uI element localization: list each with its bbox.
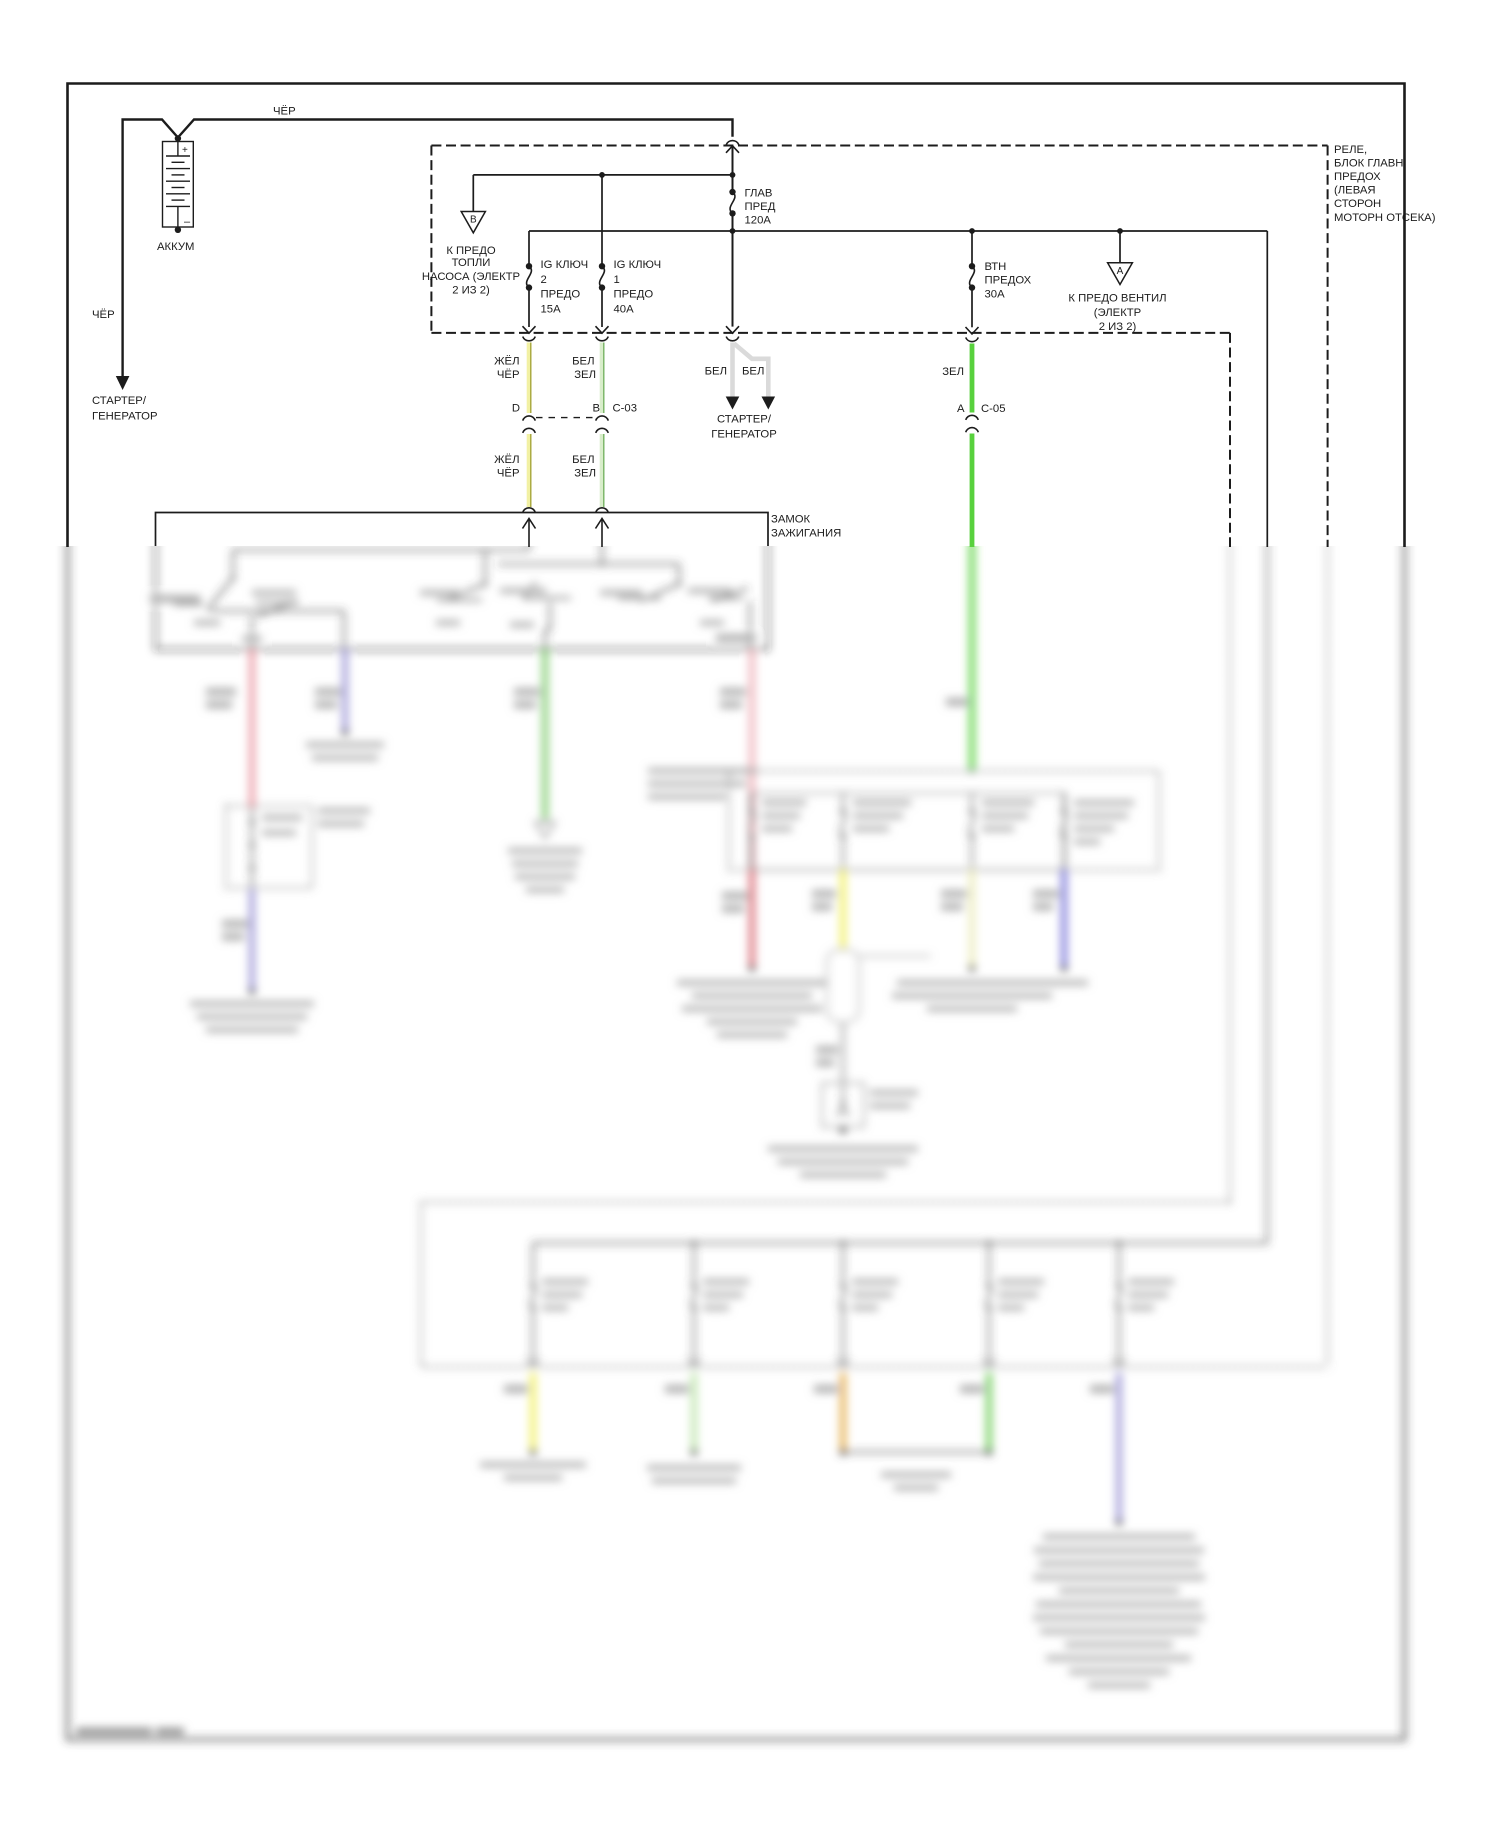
svg-text:B: B bbox=[470, 215, 477, 226]
svg-text:МОТОРН ОТСЕКА): МОТОРН ОТСЕКА) bbox=[1334, 212, 1436, 224]
svg-text:СТОРОН: СТОРОН bbox=[1334, 198, 1381, 210]
svg-text:C-03: C-03 bbox=[613, 403, 638, 415]
svg-text:ПРЕДО: ПРЕДО bbox=[541, 289, 581, 301]
svg-text:–: – bbox=[184, 216, 191, 228]
svg-text:ЧЁР: ЧЁР bbox=[92, 309, 115, 321]
svg-text:40А: 40А bbox=[614, 303, 635, 315]
svg-text:2 ИЗ 2): 2 ИЗ 2) bbox=[1099, 321, 1137, 333]
svg-text:120А: 120А bbox=[745, 215, 772, 227]
svg-text:К ПРЕДО ВЕНТИЛ: К ПРЕДО ВЕНТИЛ bbox=[1068, 293, 1166, 305]
svg-text:РЕЛЕ,: РЕЛЕ, bbox=[1334, 144, 1367, 156]
svg-text:БЕЛ: БЕЛ bbox=[572, 454, 594, 466]
svg-text:ЖЁЛ: ЖЁЛ bbox=[494, 356, 519, 368]
svg-text:ТОПЛИ: ТОПЛИ bbox=[452, 257, 491, 269]
svg-text:(ЛЕВАЯ: (ЛЕВАЯ bbox=[1334, 185, 1376, 197]
svg-text:ЧЁР: ЧЁР bbox=[273, 106, 296, 118]
svg-text:30А: 30А bbox=[985, 288, 1006, 300]
svg-text:2: 2 bbox=[541, 274, 547, 286]
svg-text:БЕЛ: БЕЛ bbox=[742, 366, 764, 378]
svg-text:АККУМ: АККУМ bbox=[157, 241, 194, 253]
svg-text:ЧЁР: ЧЁР bbox=[497, 468, 520, 480]
svg-text:БЕЛ: БЕЛ bbox=[572, 356, 594, 368]
svg-text:15А: 15А bbox=[541, 303, 562, 315]
svg-text:ЗЕЛ: ЗЕЛ bbox=[942, 366, 964, 378]
svg-text:ГЕНЕРАТОР: ГЕНЕРАТОР bbox=[92, 411, 158, 423]
svg-text:B: B bbox=[592, 403, 600, 415]
svg-text:IG КЛЮЧ: IG КЛЮЧ bbox=[614, 259, 662, 271]
svg-text:ЗАЖИГАНИЯ: ЗАЖИГАНИЯ bbox=[771, 528, 841, 540]
svg-text:ПРЕДО: ПРЕДО bbox=[614, 289, 654, 301]
svg-text:IG КЛЮЧ: IG КЛЮЧ bbox=[541, 259, 589, 271]
svg-text:1: 1 bbox=[614, 274, 620, 286]
svg-text:2 ИЗ 2): 2 ИЗ 2) bbox=[452, 285, 490, 297]
svg-text:D: D bbox=[512, 403, 520, 415]
svg-text:ЗЕЛ: ЗЕЛ bbox=[574, 369, 596, 381]
svg-text:ГЛАВ: ГЛАВ bbox=[745, 187, 773, 199]
svg-text:ПРЕД: ПРЕД bbox=[745, 201, 776, 213]
svg-text:ЗЕЛ: ЗЕЛ bbox=[574, 468, 596, 480]
svg-text:БЛОК ГЛАВН: БЛОК ГЛАВН bbox=[1334, 157, 1403, 169]
svg-text:ЖЁЛ: ЖЁЛ bbox=[494, 454, 519, 466]
svg-text:ПРЕДОХ: ПРЕДОХ bbox=[985, 275, 1032, 287]
svg-text:К ПРЕДО: К ПРЕДО bbox=[446, 245, 496, 257]
svg-text:(ЭЛЕКТР: (ЭЛЕКТР bbox=[1094, 307, 1141, 319]
svg-text:А: А bbox=[957, 403, 965, 415]
svg-text:СТАРТЕР/: СТАРТЕР/ bbox=[717, 414, 772, 426]
svg-text:+: + bbox=[182, 145, 188, 156]
svg-text:А: А bbox=[1117, 266, 1124, 277]
svg-text:БЕЛ: БЕЛ bbox=[705, 366, 727, 378]
svg-text:ПРЕДОХ: ПРЕДОХ bbox=[1334, 171, 1381, 183]
svg-text:ЗАМОК: ЗАМОК bbox=[771, 514, 811, 526]
svg-text:НАСОСА (ЭЛЕКТР: НАСОСА (ЭЛЕКТР bbox=[422, 271, 520, 283]
svg-text:C-05: C-05 bbox=[981, 403, 1006, 415]
svg-text:СТАРТЕР/: СТАРТЕР/ bbox=[92, 395, 147, 407]
svg-text:ВТН: ВТН bbox=[985, 261, 1007, 273]
svg-text:ЧЁР: ЧЁР bbox=[497, 369, 520, 381]
svg-text:ГЕНЕРАТОР: ГЕНЕРАТОР bbox=[711, 429, 777, 441]
